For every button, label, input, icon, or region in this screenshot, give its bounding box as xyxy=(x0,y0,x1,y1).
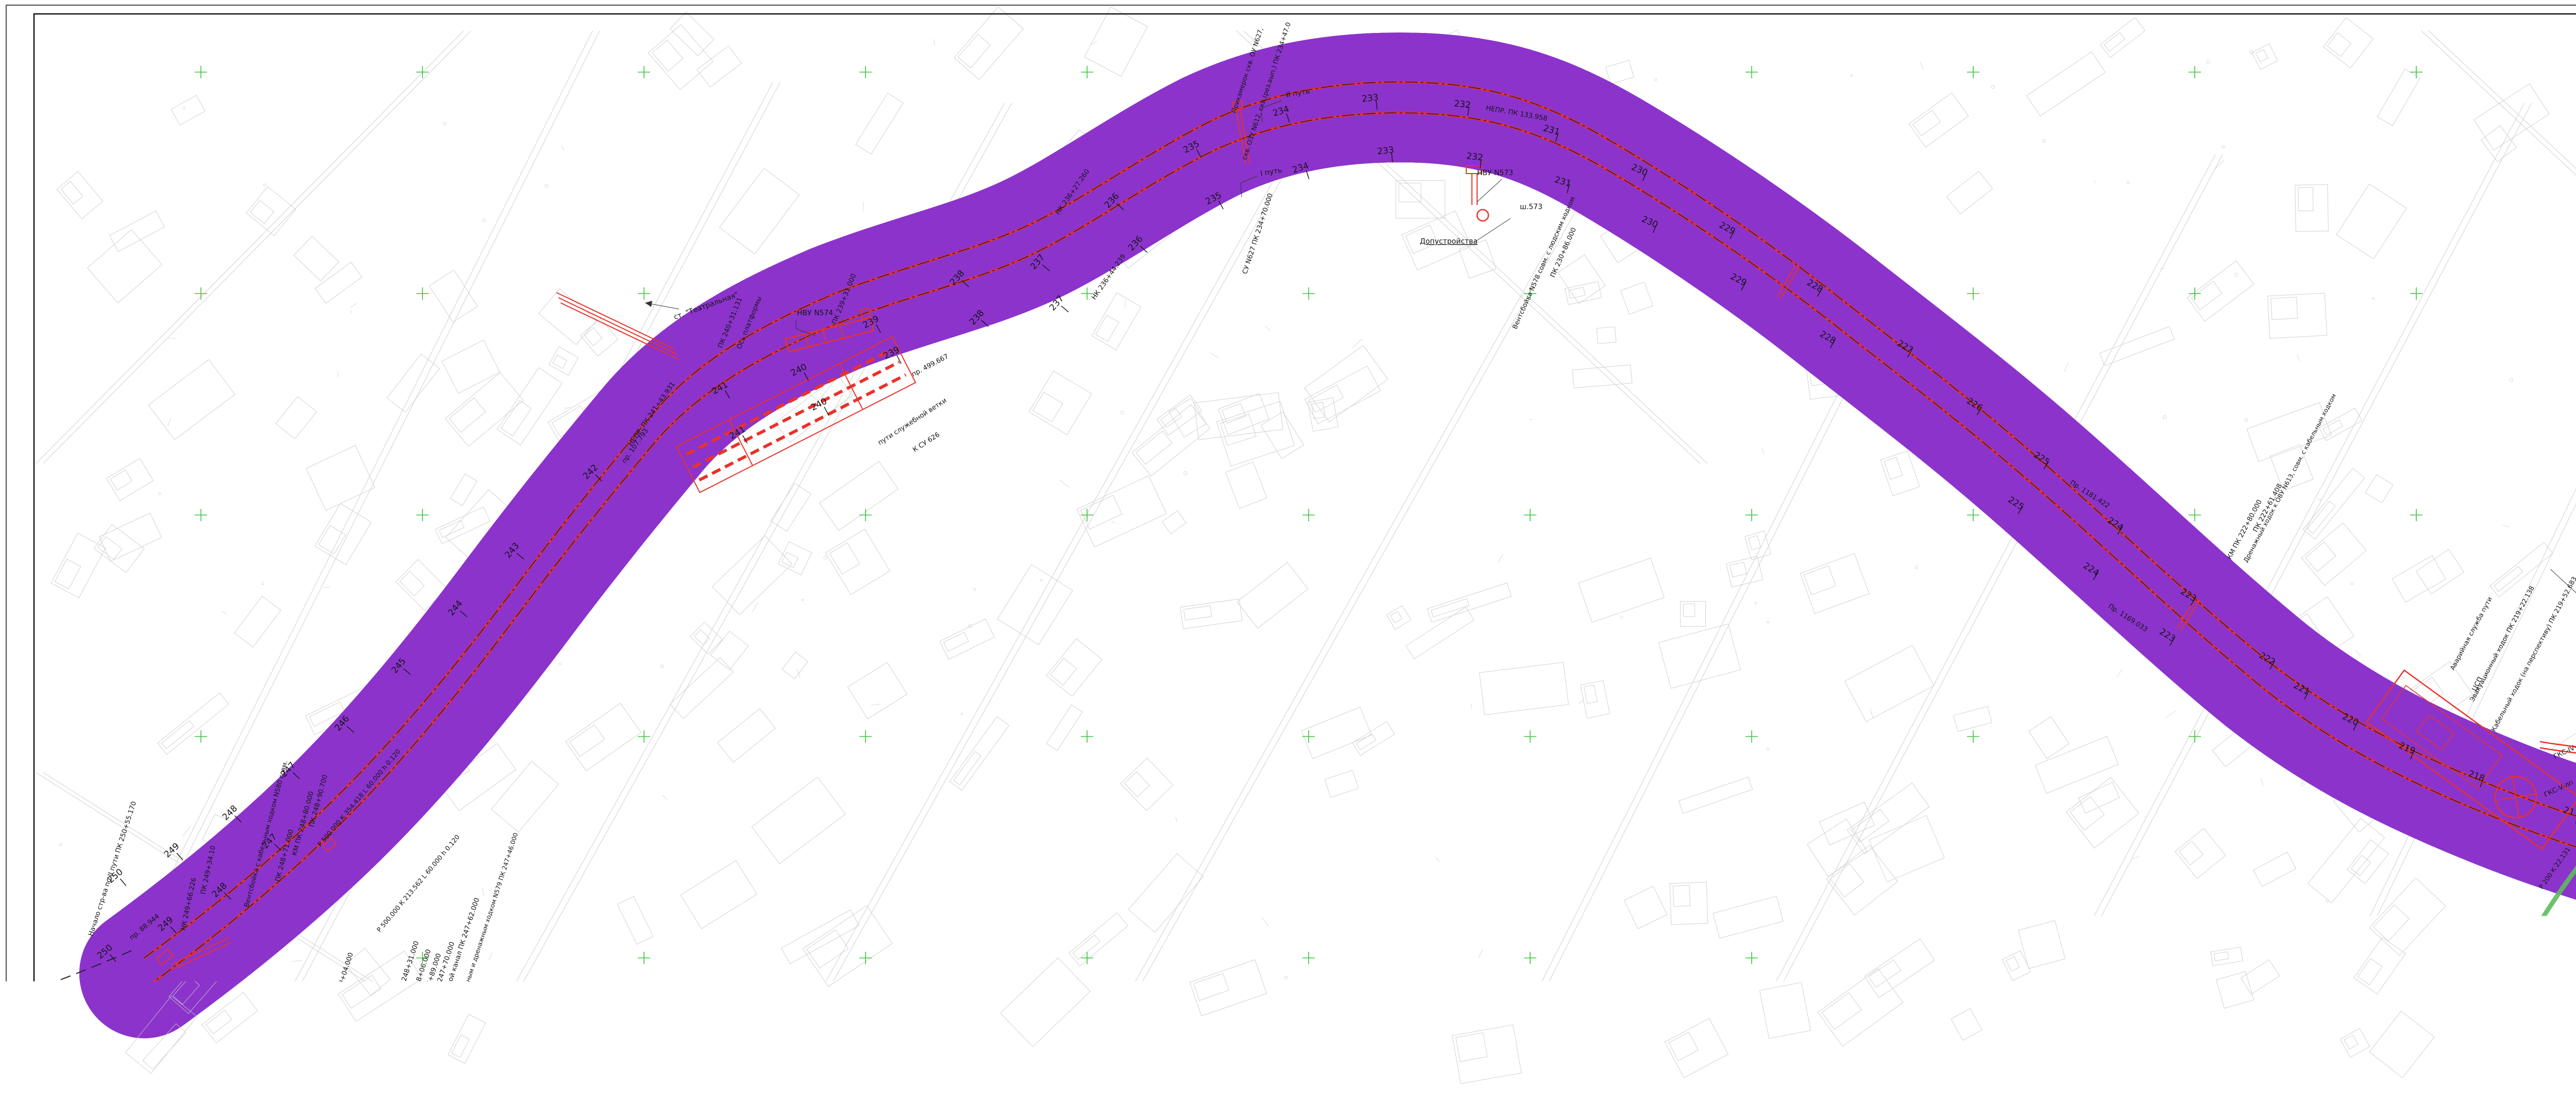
grid-cross xyxy=(1745,509,1758,521)
annotation-label: пр. 499.667 xyxy=(910,353,950,379)
annotation-label: К СУ 626 xyxy=(911,431,941,454)
grid-cross xyxy=(638,730,650,743)
grid-cross xyxy=(1524,730,1536,743)
grid-cross xyxy=(1081,952,1093,964)
annotation-label: Вентсбойка с кабельным и дренажным ходко… xyxy=(443,832,519,1048)
grid-cross xyxy=(2189,509,2201,521)
grid-cross xyxy=(2410,66,2422,78)
grid-cross xyxy=(859,66,872,78)
picket-labels: 2502502492492482482472472462452442432422… xyxy=(95,92,2576,962)
grid-cross xyxy=(859,509,872,521)
grid-cross xyxy=(195,66,207,78)
grid-cross xyxy=(1302,730,1315,743)
annotation-label: Допустройства xyxy=(1420,237,1478,246)
grid-cross xyxy=(638,952,650,964)
leader-line xyxy=(1475,218,1511,242)
grid-cross xyxy=(1745,730,1758,743)
grid-cross xyxy=(416,509,429,521)
grid-cross xyxy=(1967,509,1979,521)
picket-tick xyxy=(824,407,828,415)
grid-cross xyxy=(1967,287,1979,300)
black-markers xyxy=(303,717,2576,1020)
grid-cross xyxy=(1302,509,1315,521)
annotation-label: Дренажный ходок к ОВУ N613, совм. с кабе… xyxy=(2242,392,2337,563)
annotation-label: СУ N627 ПК 234+70.000 xyxy=(1241,193,1275,276)
grid-cross xyxy=(2189,952,2201,964)
grid-cross xyxy=(1302,287,1315,300)
annotation-label: Аварийная служба пути xyxy=(2448,595,2494,671)
grid-cross xyxy=(1745,952,1758,964)
grid-cross xyxy=(638,287,650,300)
grid-cross xyxy=(195,509,207,521)
grid-cross xyxy=(2410,287,2422,300)
annotation-label: Вентсбойка N578 совм. с людским ходком xyxy=(1511,195,1577,330)
drawing-sheet: 2502502492492482482472472462452442432422… xyxy=(0,0,2576,1095)
grid-cross xyxy=(1302,952,1315,964)
grid-cross xyxy=(1524,509,1536,521)
grid-cross xyxy=(2410,509,2422,521)
grid-cross xyxy=(1081,730,1093,743)
grid-cross xyxy=(1745,66,1758,78)
picket-number: 249 xyxy=(162,841,181,860)
annotation-label: Начало строительства по I пути ПК 248+31… xyxy=(361,940,421,1095)
annotation-label: ш.519 бис xyxy=(262,1006,300,1015)
route-plan-svg: 2502502492492482482472472462452442432422… xyxy=(0,0,2576,1095)
grid-cross xyxy=(1967,66,1979,78)
grid-cross xyxy=(2410,952,2422,964)
green-utility-line-1 xyxy=(2473,77,2576,1069)
annotation-label: ш.573 xyxy=(1520,203,1543,211)
grid-cross xyxy=(1967,952,1979,964)
utility-lines-green xyxy=(2473,77,2576,1069)
annotation-label: Кабельный ходок (на перспективу) ПК 219+… xyxy=(2489,575,2576,733)
grid-cross xyxy=(2189,730,2201,743)
picket-tick xyxy=(120,879,126,886)
grid-cross xyxy=(859,730,872,743)
leader-line xyxy=(1477,179,1502,202)
grid-cross xyxy=(195,730,207,743)
annotation-label: НВУ N574 xyxy=(797,309,833,317)
grid-cross xyxy=(638,66,650,78)
grid-cross xyxy=(2189,287,2201,300)
grid-cross xyxy=(1524,952,1536,964)
grid-cross xyxy=(2189,66,2201,78)
leader-arrowhead xyxy=(645,301,652,307)
annotation-label: ПК 248+84.000 xyxy=(348,985,372,1039)
grid-cross xyxy=(195,287,207,300)
shaft-519bis-circle xyxy=(303,1011,313,1020)
annotation-label: НВУ N573 xyxy=(1477,169,1513,177)
grid-cross xyxy=(1081,66,1093,78)
picket-tick xyxy=(1061,306,1069,312)
grid-cross xyxy=(859,952,872,964)
grid-cross xyxy=(416,66,429,78)
grid-cross xyxy=(1967,730,1979,743)
grid-cross xyxy=(416,287,429,300)
